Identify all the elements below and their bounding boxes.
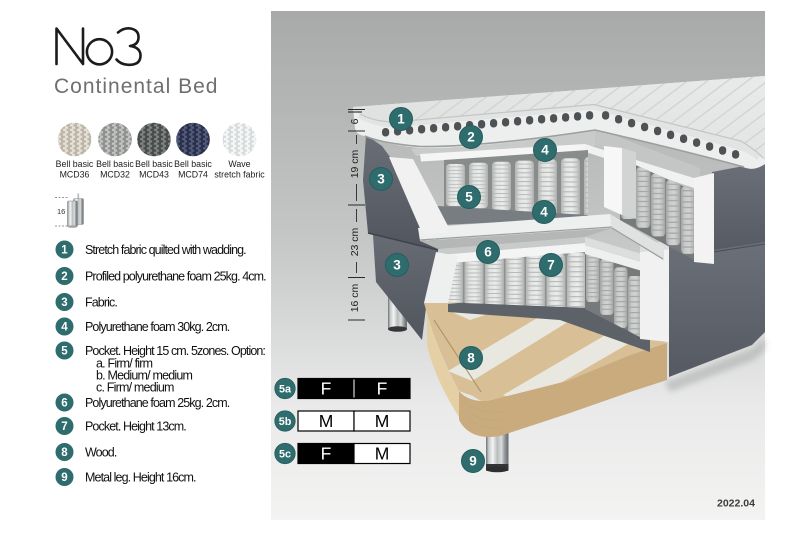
svg-text:2: 2 xyxy=(61,271,67,283)
svg-text:23 cm: 23 cm xyxy=(349,227,361,256)
svg-text:Stretch fabric quilted with wa: Stretch fabric quilted with wadding. xyxy=(85,243,246,257)
svg-text:Profiled polyurethane foam 25k: Profiled polyurethane foam 25kg. 4cm. xyxy=(85,269,266,283)
svg-text:9: 9 xyxy=(61,472,67,484)
svg-text:19 cm: 19 cm xyxy=(349,149,361,178)
svg-text:F: F xyxy=(377,379,388,399)
svg-text:MCD36: MCD36 xyxy=(60,170,90,180)
svg-text:7: 7 xyxy=(61,421,67,433)
svg-text:Bell basic: Bell basic xyxy=(174,159,212,169)
svg-text:3: 3 xyxy=(377,172,385,187)
svg-text:Bell basic: Bell basic xyxy=(56,159,94,169)
svg-text:1: 1 xyxy=(61,245,68,257)
svg-text:16: 16 xyxy=(57,207,65,216)
svg-text:M: M xyxy=(319,411,334,431)
svg-text:4: 4 xyxy=(540,205,548,220)
svg-text:c. Firm/ medium: c. Firm/ medium xyxy=(96,381,174,395)
svg-text:2022.04: 2022.04 xyxy=(717,498,755,510)
svg-text:Pocket. Height 13cm.: Pocket. Height 13cm. xyxy=(85,419,186,433)
svg-text:M: M xyxy=(375,411,390,431)
svg-text:4: 4 xyxy=(541,143,549,158)
svg-text:9: 9 xyxy=(469,454,477,469)
svg-text:Wave: Wave xyxy=(228,159,250,169)
svg-text:2: 2 xyxy=(467,130,475,145)
svg-text:8: 8 xyxy=(467,351,475,366)
svg-text:Fabric.: Fabric. xyxy=(85,295,117,309)
svg-text:6: 6 xyxy=(61,398,67,410)
svg-text:Bell basic: Bell basic xyxy=(96,159,134,169)
svg-text:Polyurethane foam 25kg. 2cm.: Polyurethane foam 25kg. 2cm. xyxy=(85,396,230,410)
svg-text:5: 5 xyxy=(61,346,68,358)
svg-text:MCD74: MCD74 xyxy=(178,170,208,180)
svg-text:MCD43: MCD43 xyxy=(139,170,169,180)
svg-text:Wood.: Wood. xyxy=(85,445,117,459)
svg-text:5b: 5b xyxy=(279,416,292,428)
svg-text:Bell basic: Bell basic xyxy=(135,159,173,169)
svg-text:F: F xyxy=(321,379,332,399)
svg-text:4: 4 xyxy=(61,322,68,334)
svg-text:6: 6 xyxy=(484,245,492,260)
svg-text:5a: 5a xyxy=(279,383,292,395)
svg-text:7: 7 xyxy=(547,258,555,273)
svg-text:M: M xyxy=(375,444,390,464)
svg-text:Polyurethane foam 30kg. 2cm.: Polyurethane foam 30kg. 2cm. xyxy=(85,320,230,334)
svg-text:8: 8 xyxy=(61,447,68,459)
svg-text:MCD32: MCD32 xyxy=(100,170,130,180)
svg-text:stretch fabric: stretch fabric xyxy=(214,170,265,180)
svg-text:3: 3 xyxy=(61,297,67,309)
svg-text:16 cm: 16 cm xyxy=(349,283,361,312)
svg-text:5c: 5c xyxy=(279,448,291,460)
svg-text:Continental Bed: Continental Bed xyxy=(54,75,218,98)
svg-text:3: 3 xyxy=(393,258,401,273)
svg-text:6: 6 xyxy=(349,118,361,124)
svg-text:1: 1 xyxy=(397,112,405,127)
svg-text:Metal leg. Height 16cm.: Metal leg. Height 16cm. xyxy=(85,470,196,484)
svg-text:F: F xyxy=(321,444,332,464)
svg-text:5: 5 xyxy=(465,190,473,205)
